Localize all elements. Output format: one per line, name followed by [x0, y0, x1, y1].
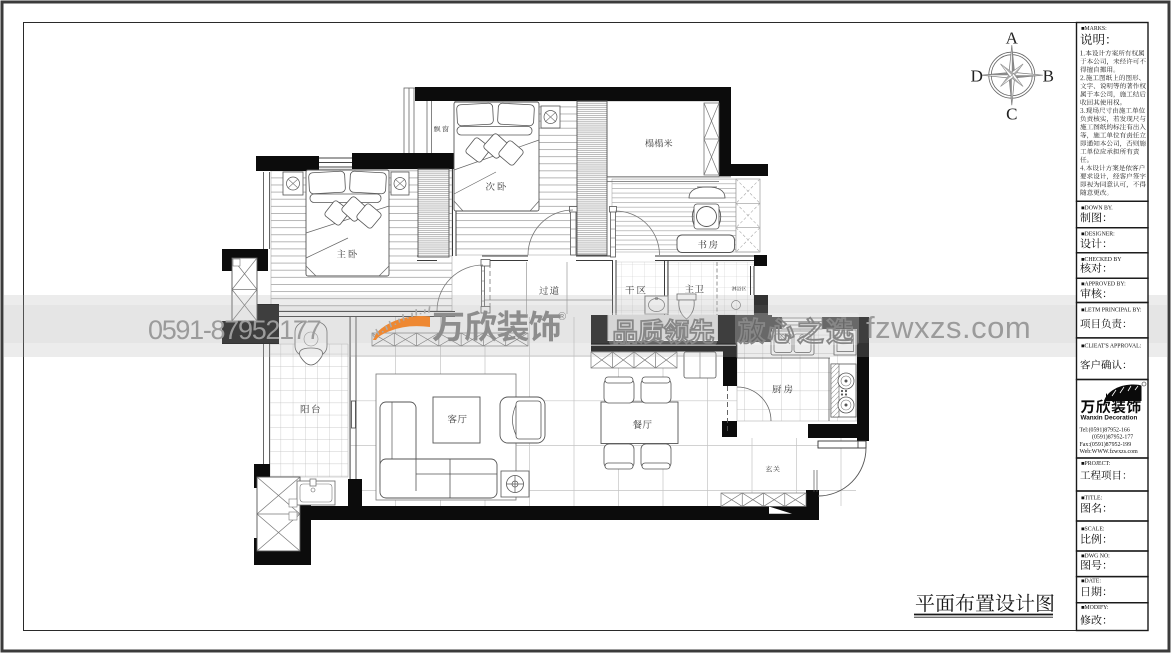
svg-text:(0591)87952-177: (0591)87952-177 [1092, 434, 1133, 441]
svg-text:■DESIGNER:: ■DESIGNER: [1081, 232, 1115, 238]
svg-text:■CHECKED BY: ■CHECKED BY [1081, 257, 1122, 263]
svg-text:■SCALE:: ■SCALE: [1081, 527, 1105, 533]
svg-text:■MODIFY:: ■MODIFY: [1081, 605, 1109, 611]
svg-text:0591-87952177: 0591-87952177 [148, 315, 321, 345]
svg-text:Wanxin Decoration: Wanxin Decoration [1081, 415, 1138, 422]
svg-text:■APPROVED BY:: ■APPROVED BY: [1081, 282, 1126, 288]
svg-text:C: C [1006, 105, 1017, 124]
svg-text:fzwxzs.com: fzwxzs.com [866, 310, 1031, 345]
svg-text:®: ® [558, 311, 566, 323]
svg-text:B: B [1043, 67, 1054, 86]
svg-text:■LETM PRINCIPAL BY:: ■LETM PRINCIPAL BY: [1081, 308, 1142, 314]
svg-text:■DATE:: ■DATE: [1081, 579, 1101, 585]
svg-text:■PROJECT:: ■PROJECT: [1081, 461, 1111, 467]
svg-text:■CLIEAT'S APPROVAL:: ■CLIEAT'S APPROVAL: [1081, 344, 1142, 350]
svg-text:Fax:(0591)87952-199: Fax:(0591)87952-199 [1080, 441, 1132, 448]
svg-text:■DOWN BY.: ■DOWN BY. [1081, 206, 1113, 212]
svg-text:A: A [1006, 29, 1019, 48]
svg-text:Web:WWW.fzwxzs.com: Web:WWW.fzwxzs.com [1080, 448, 1139, 455]
svg-text:Tel:(0591)87952-166: Tel:(0591)87952-166 [1080, 427, 1130, 434]
svg-text:D: D [971, 67, 983, 86]
svg-text:■MARKS:: ■MARKS: [1081, 26, 1107, 32]
svg-text:■DWG NO:: ■DWG NO: [1081, 554, 1110, 560]
svg-text:■TITLE:: ■TITLE: [1081, 496, 1103, 502]
